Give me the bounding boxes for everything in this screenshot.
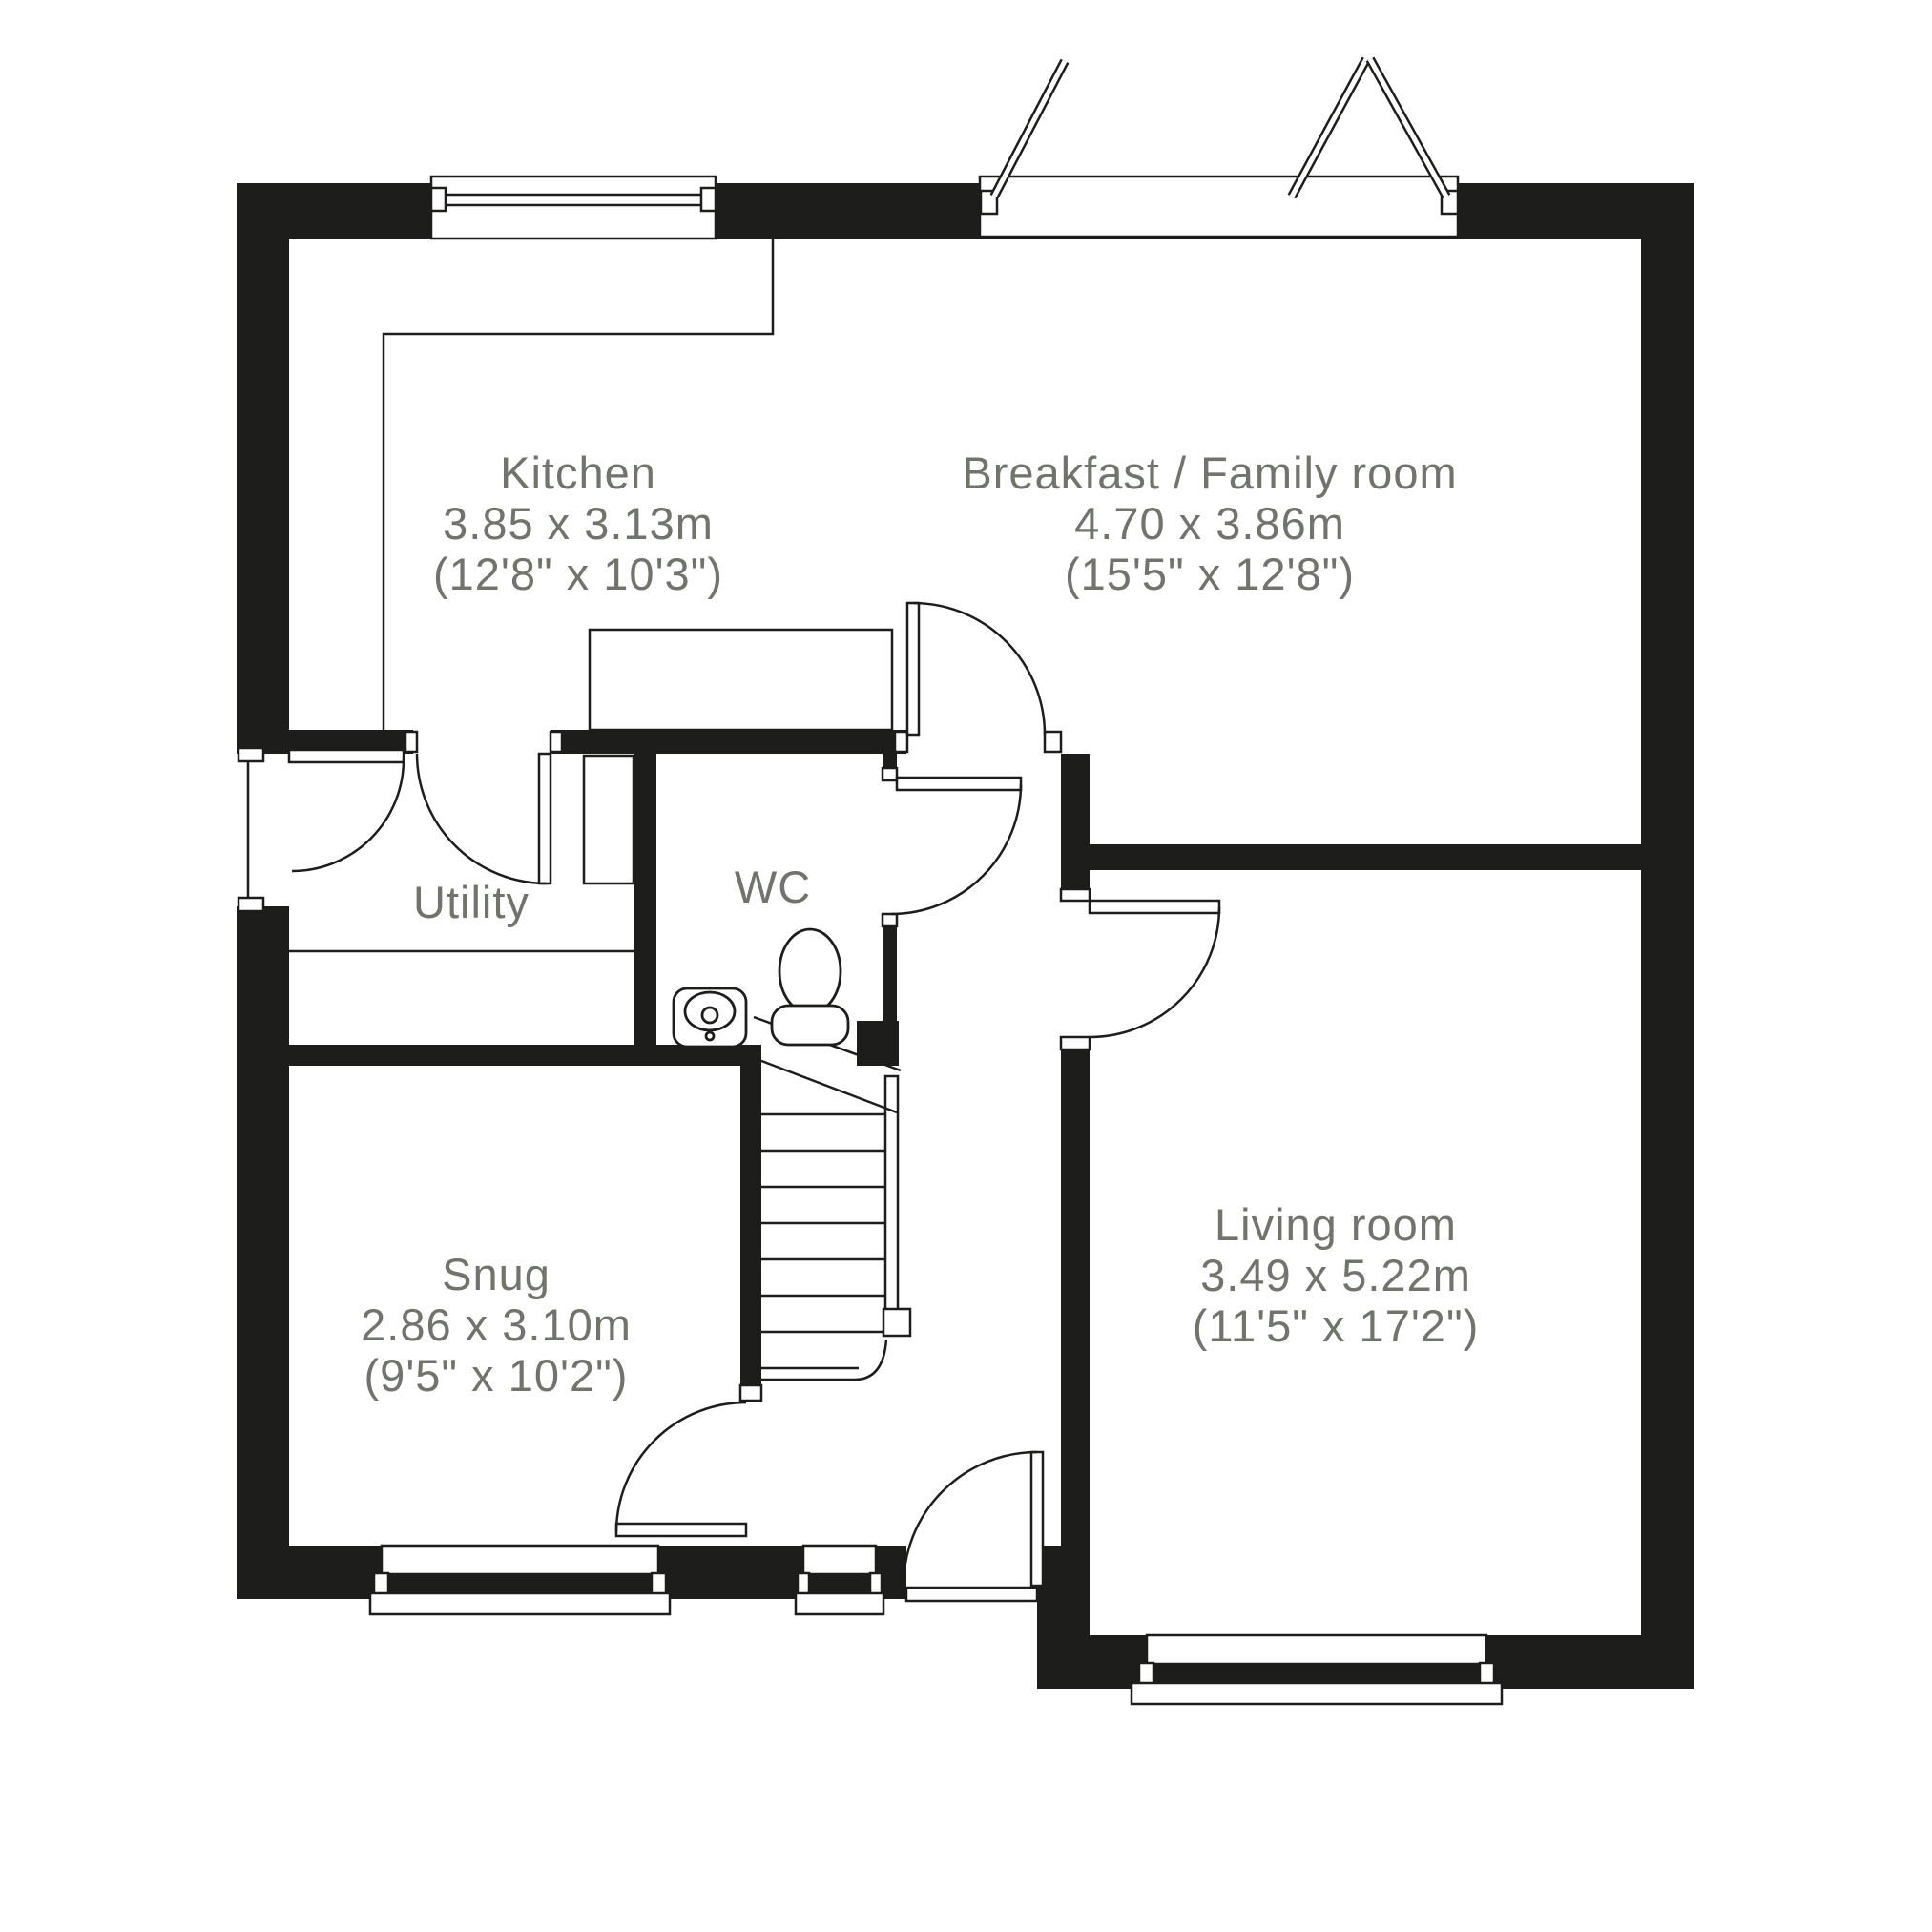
- front-door-threshold: [906, 1588, 1037, 1601]
- hall-door: [895, 603, 1061, 752]
- wc-toilet: [772, 929, 848, 1045]
- wc-basin: [674, 988, 746, 1047]
- snug-window-sill: [370, 1593, 670, 1614]
- utility-door: [405, 732, 562, 883]
- floor-plan-canvas: Kitchen 3.85 x 3.13m (12'8" x 10'3") Bre…: [0, 0, 1932, 1932]
- garden-doors: [980, 59, 1458, 237]
- kitchen-label: Kitchen: [500, 447, 656, 498]
- wall-wc-right-lower: [883, 914, 897, 1021]
- kitchen-peninsula-counter: [590, 630, 892, 730]
- floor-plan-page: Kitchen 3.85 x 3.13m (12'8" x 10'3") Bre…: [0, 0, 1932, 1932]
- interior-walls: [289, 730, 1641, 1546]
- wall-snug-right: [740, 1066, 761, 1399]
- wc-label: WC: [735, 862, 811, 912]
- breakfast-dims-imperial: (15'5" x 12'8"): [1065, 549, 1355, 599]
- wall-left-lower: [237, 906, 289, 1599]
- living-dims-metric: 3.49 x 5.22m: [1200, 1250, 1471, 1300]
- living-label: Living room: [1215, 1199, 1457, 1250]
- entrance-sidelight-window: [796, 1546, 883, 1614]
- wall-wc-foot: [857, 1021, 899, 1066]
- wall-hall-living-upper: [1061, 754, 1090, 902]
- wall-utility-wc-divider: [634, 754, 656, 1045]
- wc-door: [883, 768, 1021, 926]
- living-window-sill: [1132, 1683, 1502, 1704]
- wc-fixtures: [674, 929, 848, 1047]
- snug-label: Snug: [442, 1249, 551, 1299]
- front-door: [904, 1452, 1043, 1601]
- breakfast-dims-metric: 4.70 x 3.86m: [1074, 498, 1345, 549]
- exterior-walls: [237, 183, 1694, 1689]
- stairs: [754, 1017, 910, 1380]
- kitchen-dims-metric: 3.85 x 3.13m: [443, 498, 714, 549]
- room-labels: Kitchen 3.85 x 3.13m (12'8" x 10'3") Bre…: [361, 447, 1479, 1401]
- wall-kitchen-wc-top: [551, 730, 906, 754]
- sidelight-sill: [796, 1593, 883, 1614]
- stairs-cut-line-2: [757, 1059, 897, 1112]
- side-door: [239, 748, 404, 911]
- living-dims-imperial: (11'5" x 17'2"): [1193, 1300, 1480, 1351]
- snug-dims-imperial: (9'5" x 10'2"): [364, 1350, 629, 1401]
- wall-breakfast-living-divider: [1090, 844, 1641, 870]
- stairs-newel-post: [883, 1309, 910, 1336]
- snug-dims-metric: 2.86 x 3.10m: [361, 1299, 632, 1350]
- snug-door: [616, 1385, 761, 1536]
- breakfast-label: Breakfast / Family room: [962, 447, 1457, 498]
- wall-left-upper: [237, 183, 289, 754]
- wall-right: [1641, 183, 1694, 1689]
- living-room-door: [1061, 889, 1219, 1049]
- stairs-bottom-rail-curve: [758, 1340, 886, 1380]
- utility-label: Utility: [413, 877, 530, 927]
- wall-hall-living-lower: [1061, 1040, 1090, 1546]
- living-room-window: [1132, 1635, 1502, 1704]
- kitchen-dims-imperial: (12'8" x 10'3"): [433, 549, 723, 599]
- utility-tall-unit: [584, 756, 634, 883]
- kitchen-window: [431, 177, 716, 239]
- snug-window: [370, 1546, 670, 1614]
